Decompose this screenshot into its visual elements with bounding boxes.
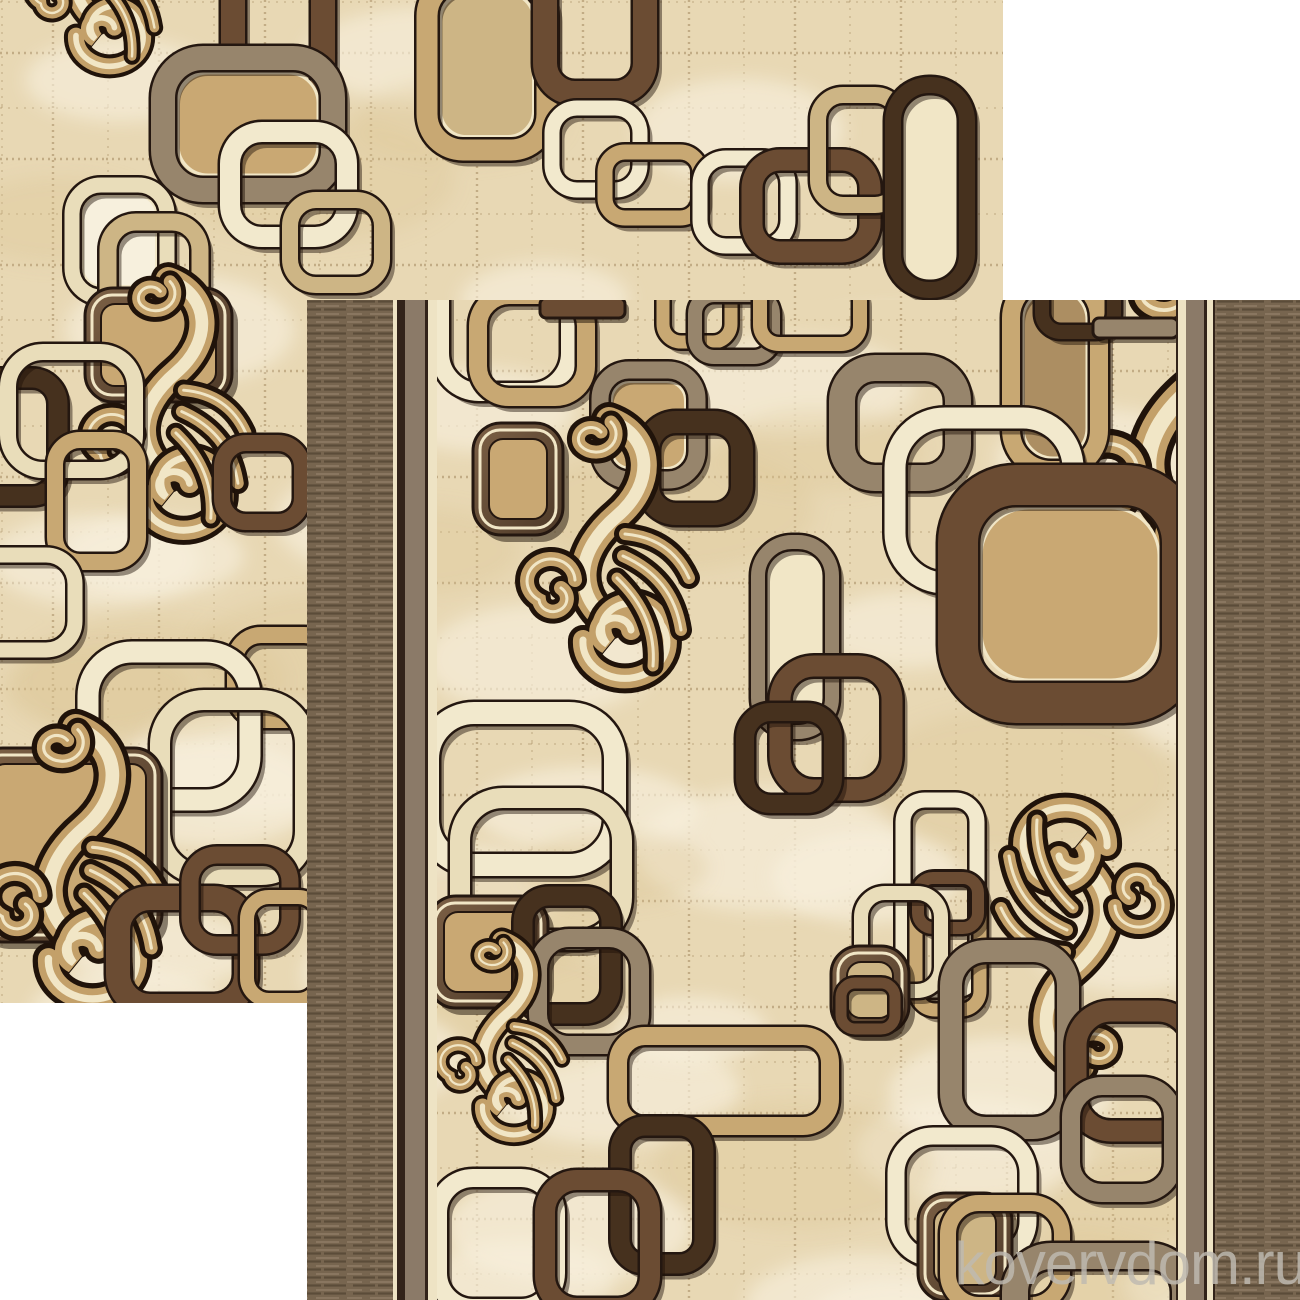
carpet-border-stripe: [1207, 300, 1213, 1300]
carpet-border-stripe: [397, 300, 405, 1300]
carpet-border-stripe: [1213, 300, 1215, 1300]
carpet-border-stripe: [1186, 300, 1204, 1300]
ring-inner-panel: [904, 96, 956, 279]
ring-inner-panel: [981, 508, 1159, 680]
carpet-border-stripe: [1176, 300, 1178, 1300]
carpet-border-stripe: [1178, 300, 1186, 1300]
bar-motif: [540, 298, 625, 318]
carpet-tile-front: [164, 252, 1300, 1300]
band-texture: [1215, 300, 1300, 1300]
carpet-border-stripe: [425, 300, 428, 1300]
bar-motif: [1093, 318, 1178, 338]
carpet-border-stripe: [393, 300, 397, 1300]
band-texture: [307, 300, 393, 1300]
ring-inner-panel: [441, 0, 534, 137]
carpet-border-stripe: [428, 300, 437, 1300]
carpet-pattern-art: [0, 0, 1300, 1300]
carpet-border-stripe: [405, 300, 425, 1300]
carpet-product-photo: kovervdom.ru: [0, 0, 1300, 1300]
square-inner-panel: [489, 439, 547, 519]
carpet-border-stripe: [1204, 300, 1207, 1300]
